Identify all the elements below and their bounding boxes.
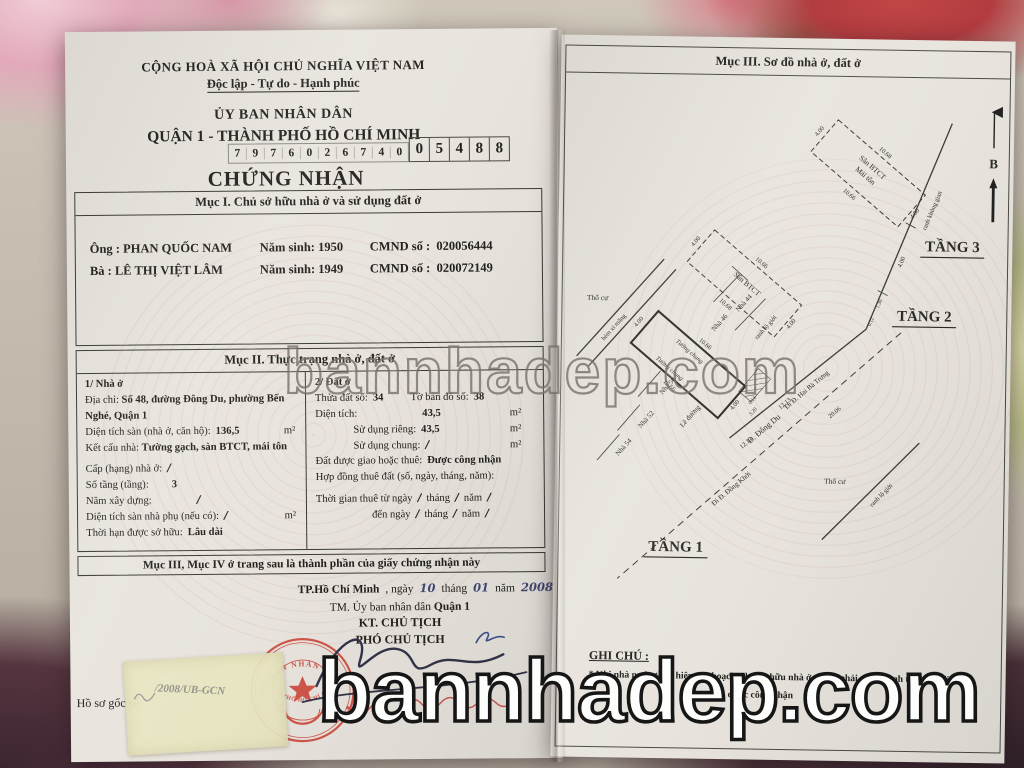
handwritten-day: 10 <box>419 581 435 595</box>
serial-digit: 9 <box>246 147 264 159</box>
serial-digit: 8 <box>469 137 489 160</box>
owner-row: Bà : LÊ THỊ VIỆT LÂM Năm sinh: 1949 CMND… <box>90 260 542 279</box>
serial-digit: 4 <box>449 138 469 161</box>
section-1-box: Mục I. Chủ sở hữu nhà ở và sử dụng đất ở… <box>74 188 543 346</box>
land-grant: Đất được giao hoặc thuê:Được công nhận <box>316 453 526 471</box>
boundary-label: ranh lộ giới <box>868 482 894 508</box>
national-motto-line1: CỘNG HOÀ XÃ HỘI CHỦ NGHĨA VIỆT NAM <box>65 56 501 76</box>
house-floor-area: Diện tích sàn (nhà ở, căn hộ):136,5m² <box>85 423 299 441</box>
floor1-label: TẦNG 1 <box>648 538 703 556</box>
house-structure: Kết cấu nhà: Tường gạch, sàn BTCT, mái t… <box>85 439 299 457</box>
serial-digit: 6 <box>282 147 300 159</box>
dim: 10.66 <box>841 187 856 202</box>
section-3-heading: Mục III. Sơ đồ nhà ở, đất ở <box>566 46 1010 80</box>
on-behalf-line: TM. Ủy ban nhân dân Quận 1 <box>266 600 534 614</box>
house-tenure: Thời hạn được sở hữu:Lâu dài <box>86 524 300 542</box>
serial-group-1: 7 9 7 6 0 2 6 7 4 0 <box>228 142 409 164</box>
dim: 0.12 <box>867 316 876 327</box>
owner-birth: Năm sinh: 1950 <box>260 240 370 256</box>
section-3-note: Mục III, Mục IV ở trang sau là thành phầ… <box>77 552 545 576</box>
serial-group-2: 0 5 4 8 8 <box>409 136 510 162</box>
dim: 1.30 <box>875 298 884 309</box>
house-aux-area: Diện tích sàn nhà phụ (nếu có):/m² <box>86 508 300 526</box>
owner-name: Bà : LÊ THỊ VIỆT LÂM <box>90 262 260 278</box>
lease-from: Thời gian thuê từ ngày/tháng/năm/ <box>316 490 526 508</box>
watermark-text: bannhadep.com <box>284 334 801 408</box>
neighbor-label: Nhà 54 <box>614 437 634 458</box>
issuer-name: ỦY BAN NHÂN DÂN <box>65 105 501 125</box>
serial-digit: 7 <box>264 147 282 159</box>
house-column: 1/ Nhà ở Địa chỉ: Số 48, đường Đông Du, … <box>85 375 300 542</box>
dim: 4.00 <box>633 315 646 328</box>
house-floors: Số tầng (tầng):3 <box>86 476 300 494</box>
house-address: Địa chỉ: Số 48, đường Đông Du, phường Bế… <box>85 391 299 425</box>
handwritten-month: 01 <box>473 580 489 594</box>
national-motto-line2: Độc lập - Tự do - Hạnh phúc <box>65 74 501 93</box>
serial-digit: 6 <box>336 147 354 159</box>
floor3-plan: Sân BTCT Mái tôn 10.68 10.66 4.00 4.00 <box>796 106 937 240</box>
land-private-use: Sử dụng riêng:43,5m² <box>315 421 525 439</box>
land-label: Thổ cư <box>587 293 609 302</box>
signing-date-line: TP.Hồ Chí Minh, ngày10tháng01năm2008 <box>298 580 553 596</box>
dim: 10.68 <box>718 297 733 312</box>
dim: 20.06 <box>827 405 843 420</box>
lease-to: đến ngày/tháng/năm/ <box>316 506 526 524</box>
serial-digit: 8 <box>489 137 509 160</box>
owners-list: Ông : PHAN QUỐC NAM Năm sinh: 1950 CMND … <box>75 212 542 279</box>
serial-digit: 7 <box>354 146 372 158</box>
dim: 10.68 <box>877 146 892 161</box>
serial-digit: 7 <box>229 148 246 160</box>
owner-id: CMND số : 020072149 <box>370 260 542 277</box>
dim: 4.00 <box>909 207 922 220</box>
document-number-sticker: /2008/UB-GCN <box>123 652 288 756</box>
sticker-text: /2008/UB-GCN <box>155 682 226 697</box>
land-label: Thổ cư <box>824 477 846 486</box>
serial-digit: 2 <box>318 147 336 159</box>
watermark-text: bannhadep.com <box>318 640 980 742</box>
compass-label: B <box>989 156 998 171</box>
house-year-built: Năm xây dựng:/ <box>86 492 300 510</box>
serial-digit: 5 <box>429 138 449 161</box>
owner-row: Ông : PHAN QUỐC NAM Năm sinh: 1950 CMND … <box>90 238 542 257</box>
neighbor-label: Nhà 46 <box>710 312 730 333</box>
floor2-label: TẦNG 2 <box>897 308 952 326</box>
neighbor-label: Nhà 52 <box>636 409 656 430</box>
certificate-serial-number: 7 9 7 6 0 2 6 7 4 0 0 5 4 8 8 <box>228 136 510 163</box>
certificate-header: CỘNG HOÀ XÃ HỘI CHỦ NGHĨA VIỆT NAM Độc l… <box>65 56 502 147</box>
dim: 4.00 <box>785 318 798 331</box>
house-title: 1/ Nhà ở <box>85 375 299 393</box>
neighbor-label: Nhà 44 <box>734 292 754 313</box>
dim: 10.66 <box>754 256 769 271</box>
serial-digit: 4 <box>372 146 390 158</box>
north-arrow-icon: B <box>988 112 999 222</box>
serial-digit: 0 <box>390 146 408 158</box>
dim: 4.00 <box>896 256 907 269</box>
serial-digit: 0 <box>300 147 318 159</box>
direction-label: Đi Đ. Đồng Khởi <box>710 470 753 508</box>
house-grade: Cấp (hạng) nhà ở:/ <box>86 461 300 479</box>
land-shared-use: Sử dụng chung:/m² <box>315 437 525 455</box>
serial-digit: 0 <box>410 138 429 161</box>
floor2-plan: Sân BTCT 10.66 10.68 4.00 4.00 <box>672 217 813 351</box>
land-contract: Hợp đồng thuê đất (số, ngày, tháng, năm)… <box>316 468 526 486</box>
owner-name: Ông : PHAN QUỐC NAM <box>90 240 260 256</box>
owner-id: CMND số : 020056444 <box>370 238 542 255</box>
owner-birth: Năm sinh: 1949 <box>260 262 370 278</box>
floor3-label: TẦNG 3 <box>925 238 980 256</box>
